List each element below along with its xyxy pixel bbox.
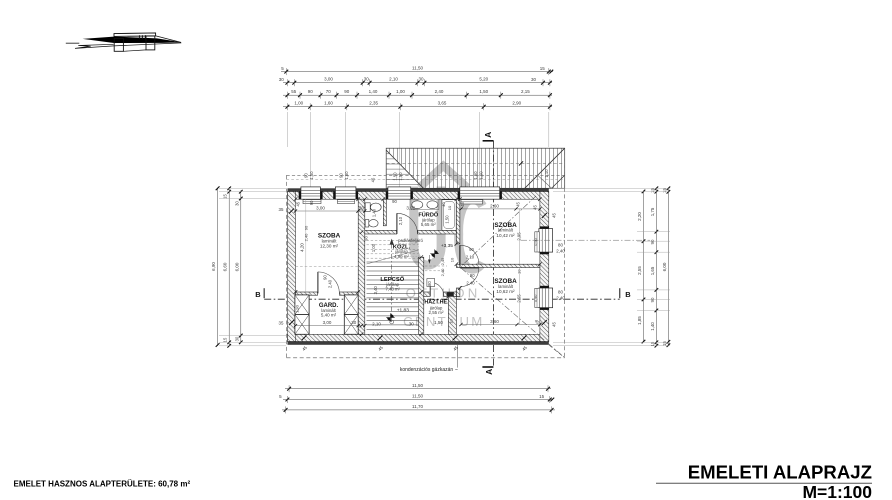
svg-text:1,50: 1,50 bbox=[398, 172, 403, 181]
svg-text:90: 90 bbox=[650, 239, 655, 244]
svg-text:OTTHON: OTTHON bbox=[406, 286, 481, 301]
svg-text:90: 90 bbox=[364, 236, 369, 241]
svg-text:1,50: 1,50 bbox=[478, 171, 483, 180]
svg-text:5,20: 5,20 bbox=[479, 77, 488, 82]
svg-text:35: 35 bbox=[279, 321, 284, 326]
svg-text:+3,35: +3,35 bbox=[441, 243, 453, 249]
svg-text:4,20: 4,20 bbox=[300, 243, 305, 252]
svg-text:1,50: 1,50 bbox=[479, 89, 488, 94]
svg-text:2,10: 2,10 bbox=[372, 322, 381, 327]
svg-text:A: A bbox=[484, 369, 494, 375]
svg-text:11,50: 11,50 bbox=[412, 394, 423, 399]
svg-text:1,50: 1,50 bbox=[392, 172, 397, 181]
svg-text:6,60: 6,60 bbox=[223, 262, 228, 271]
svg-text:90: 90 bbox=[323, 275, 328, 280]
svg-text:90: 90 bbox=[309, 200, 314, 205]
svg-text:EMELETI ALAPRAJZ: EMELETI ALAPRAJZ bbox=[688, 462, 872, 483]
svg-text:2,40: 2,40 bbox=[304, 233, 309, 242]
svg-text:3,00: 3,00 bbox=[324, 77, 333, 82]
svg-text:2,55: 2,55 bbox=[637, 266, 642, 275]
svg-text:3,92: 3,92 bbox=[406, 206, 415, 211]
svg-text:80: 80 bbox=[558, 290, 563, 295]
svg-text:1,40: 1,40 bbox=[650, 322, 655, 331]
svg-text:HÁZT.HE.: HÁZT.HE. bbox=[424, 299, 449, 306]
svg-text:3,00: 3,00 bbox=[316, 205, 325, 210]
svg-text:1,50: 1,50 bbox=[445, 215, 450, 224]
svg-text:1,40: 1,40 bbox=[372, 208, 377, 217]
svg-text:30: 30 bbox=[418, 77, 424, 82]
svg-text:2,95: 2,95 bbox=[517, 232, 522, 241]
svg-text:1,00: 1,00 bbox=[294, 101, 303, 106]
svg-text:15: 15 bbox=[223, 337, 228, 342]
svg-text:kondenzációs gázkazán: kondenzációs gázkazán bbox=[400, 367, 454, 373]
svg-text:1,40: 1,40 bbox=[369, 89, 378, 94]
svg-text:10: 10 bbox=[448, 319, 453, 324]
svg-text:2,10: 2,10 bbox=[398, 216, 403, 225]
svg-text:1,50: 1,50 bbox=[344, 171, 349, 180]
svg-text:EMELET HASZNOS ALAPTERÜLETE: 6: EMELET HASZNOS ALAPTERÜLETE: 60,78 m² bbox=[14, 480, 191, 489]
svg-text:1,50: 1,50 bbox=[309, 171, 314, 180]
svg-text:90: 90 bbox=[308, 89, 314, 94]
svg-text:2,40: 2,40 bbox=[440, 268, 445, 277]
svg-text:40: 40 bbox=[441, 202, 446, 207]
svg-text:15: 15 bbox=[539, 394, 545, 399]
svg-text:30: 30 bbox=[234, 201, 239, 206]
svg-text:3,00: 3,00 bbox=[323, 320, 332, 325]
svg-text:45: 45 bbox=[371, 177, 376, 182]
svg-text:5,40 m²: 5,40 m² bbox=[321, 313, 337, 318]
svg-text:45: 45 bbox=[552, 322, 557, 327]
svg-text:1,00: 1,00 bbox=[371, 243, 376, 252]
svg-text:1,90: 1,90 bbox=[295, 304, 300, 313]
svg-text:90: 90 bbox=[344, 89, 350, 94]
svg-text:1,50: 1,50 bbox=[473, 171, 478, 180]
svg-text:30: 30 bbox=[531, 77, 537, 82]
svg-text:B: B bbox=[625, 290, 631, 299]
svg-text:0,90: 0,90 bbox=[533, 237, 538, 245]
svg-text:10: 10 bbox=[517, 269, 522, 274]
svg-text:10: 10 bbox=[450, 257, 455, 262]
svg-text:7,43 m²: 7,43 m² bbox=[385, 286, 400, 291]
svg-text:11,50: 11,50 bbox=[412, 383, 423, 388]
svg-text:11,70: 11,70 bbox=[412, 404, 423, 409]
svg-text:2,40: 2,40 bbox=[556, 249, 565, 254]
svg-text:90: 90 bbox=[392, 199, 397, 204]
svg-text:2,40: 2,40 bbox=[435, 89, 444, 94]
svg-text:2,45: 2,45 bbox=[440, 257, 445, 266]
svg-text:2,40: 2,40 bbox=[556, 296, 565, 301]
svg-text:2,10: 2,10 bbox=[389, 77, 398, 82]
svg-text:45: 45 bbox=[295, 201, 300, 206]
svg-text:30: 30 bbox=[409, 322, 415, 327]
svg-text:+1,83: +1,83 bbox=[397, 308, 409, 314]
svg-text:5,65 m²: 5,65 m² bbox=[421, 222, 436, 227]
svg-text:3,40: 3,40 bbox=[373, 286, 378, 295]
svg-text:45: 45 bbox=[552, 213, 557, 218]
svg-text:30: 30 bbox=[279, 77, 285, 82]
svg-text:2,40: 2,40 bbox=[466, 281, 475, 286]
svg-text:70: 70 bbox=[326, 89, 332, 94]
svg-text:10,62 m²: 10,62 m² bbox=[496, 289, 515, 294]
svg-text:2,90: 2,90 bbox=[512, 101, 521, 106]
svg-text:3,65: 3,65 bbox=[438, 101, 447, 106]
svg-text:6,00: 6,00 bbox=[234, 262, 239, 271]
svg-text:1,50: 1,50 bbox=[434, 320, 443, 325]
svg-text:12,30 m²: 12,30 m² bbox=[320, 244, 339, 249]
svg-text:15: 15 bbox=[540, 66, 546, 71]
svg-text:6,00: 6,00 bbox=[662, 262, 667, 271]
svg-text:90: 90 bbox=[650, 297, 655, 302]
svg-text:2,10: 2,10 bbox=[466, 255, 475, 260]
svg-text:11,50: 11,50 bbox=[412, 66, 423, 71]
svg-text:80: 80 bbox=[558, 243, 563, 248]
svg-text:90: 90 bbox=[304, 225, 309, 230]
svg-text:90: 90 bbox=[470, 273, 475, 278]
svg-text:A: A bbox=[483, 132, 493, 138]
svg-text:1,10: 1,10 bbox=[544, 169, 549, 178]
svg-text:55: 55 bbox=[291, 89, 297, 94]
svg-text:30: 30 bbox=[234, 336, 239, 341]
svg-text:2,20: 2,20 bbox=[637, 212, 642, 221]
svg-text:4,90 m²: 4,90 m² bbox=[394, 254, 409, 259]
svg-text:45: 45 bbox=[460, 202, 465, 207]
svg-text:1,65: 1,65 bbox=[650, 266, 655, 275]
svg-text:45: 45 bbox=[516, 202, 521, 207]
svg-text:90: 90 bbox=[469, 247, 474, 252]
svg-text:2,15: 2,15 bbox=[521, 89, 530, 94]
svg-text:10,42 m²: 10,42 m² bbox=[496, 233, 515, 238]
svg-text:1,60: 1,60 bbox=[324, 101, 333, 106]
svg-text:45: 45 bbox=[533, 205, 538, 210]
svg-text:90: 90 bbox=[339, 173, 344, 178]
svg-text:15: 15 bbox=[223, 194, 228, 199]
svg-text:2,55 m²: 2,55 m² bbox=[429, 310, 444, 315]
svg-text:2,55: 2,55 bbox=[517, 294, 522, 303]
svg-text:30: 30 bbox=[364, 77, 370, 82]
svg-text:0,90: 0,90 bbox=[533, 294, 538, 302]
svg-text:15: 15 bbox=[662, 341, 667, 346]
svg-text:30: 30 bbox=[351, 320, 357, 325]
svg-text:B: B bbox=[255, 290, 261, 299]
svg-text:M=1:100: M=1:100 bbox=[802, 482, 872, 500]
svg-text:6,90: 6,90 bbox=[211, 262, 216, 271]
svg-text:90: 90 bbox=[304, 173, 309, 178]
svg-text:10: 10 bbox=[447, 205, 452, 210]
svg-text:35: 35 bbox=[279, 207, 284, 212]
svg-text:2,35: 2,35 bbox=[369, 101, 378, 106]
svg-text:80: 80 bbox=[427, 281, 432, 286]
svg-text:3,60: 3,60 bbox=[490, 319, 499, 324]
svg-text:padlásfeljáró: padlásfeljáró bbox=[398, 238, 423, 243]
svg-text:2,40: 2,40 bbox=[328, 279, 333, 288]
svg-text:2,60: 2,60 bbox=[490, 203, 499, 208]
svg-text:1,85: 1,85 bbox=[637, 316, 642, 325]
svg-text:1,75: 1,75 bbox=[650, 207, 655, 216]
svg-text:1,00: 1,00 bbox=[396, 89, 405, 94]
